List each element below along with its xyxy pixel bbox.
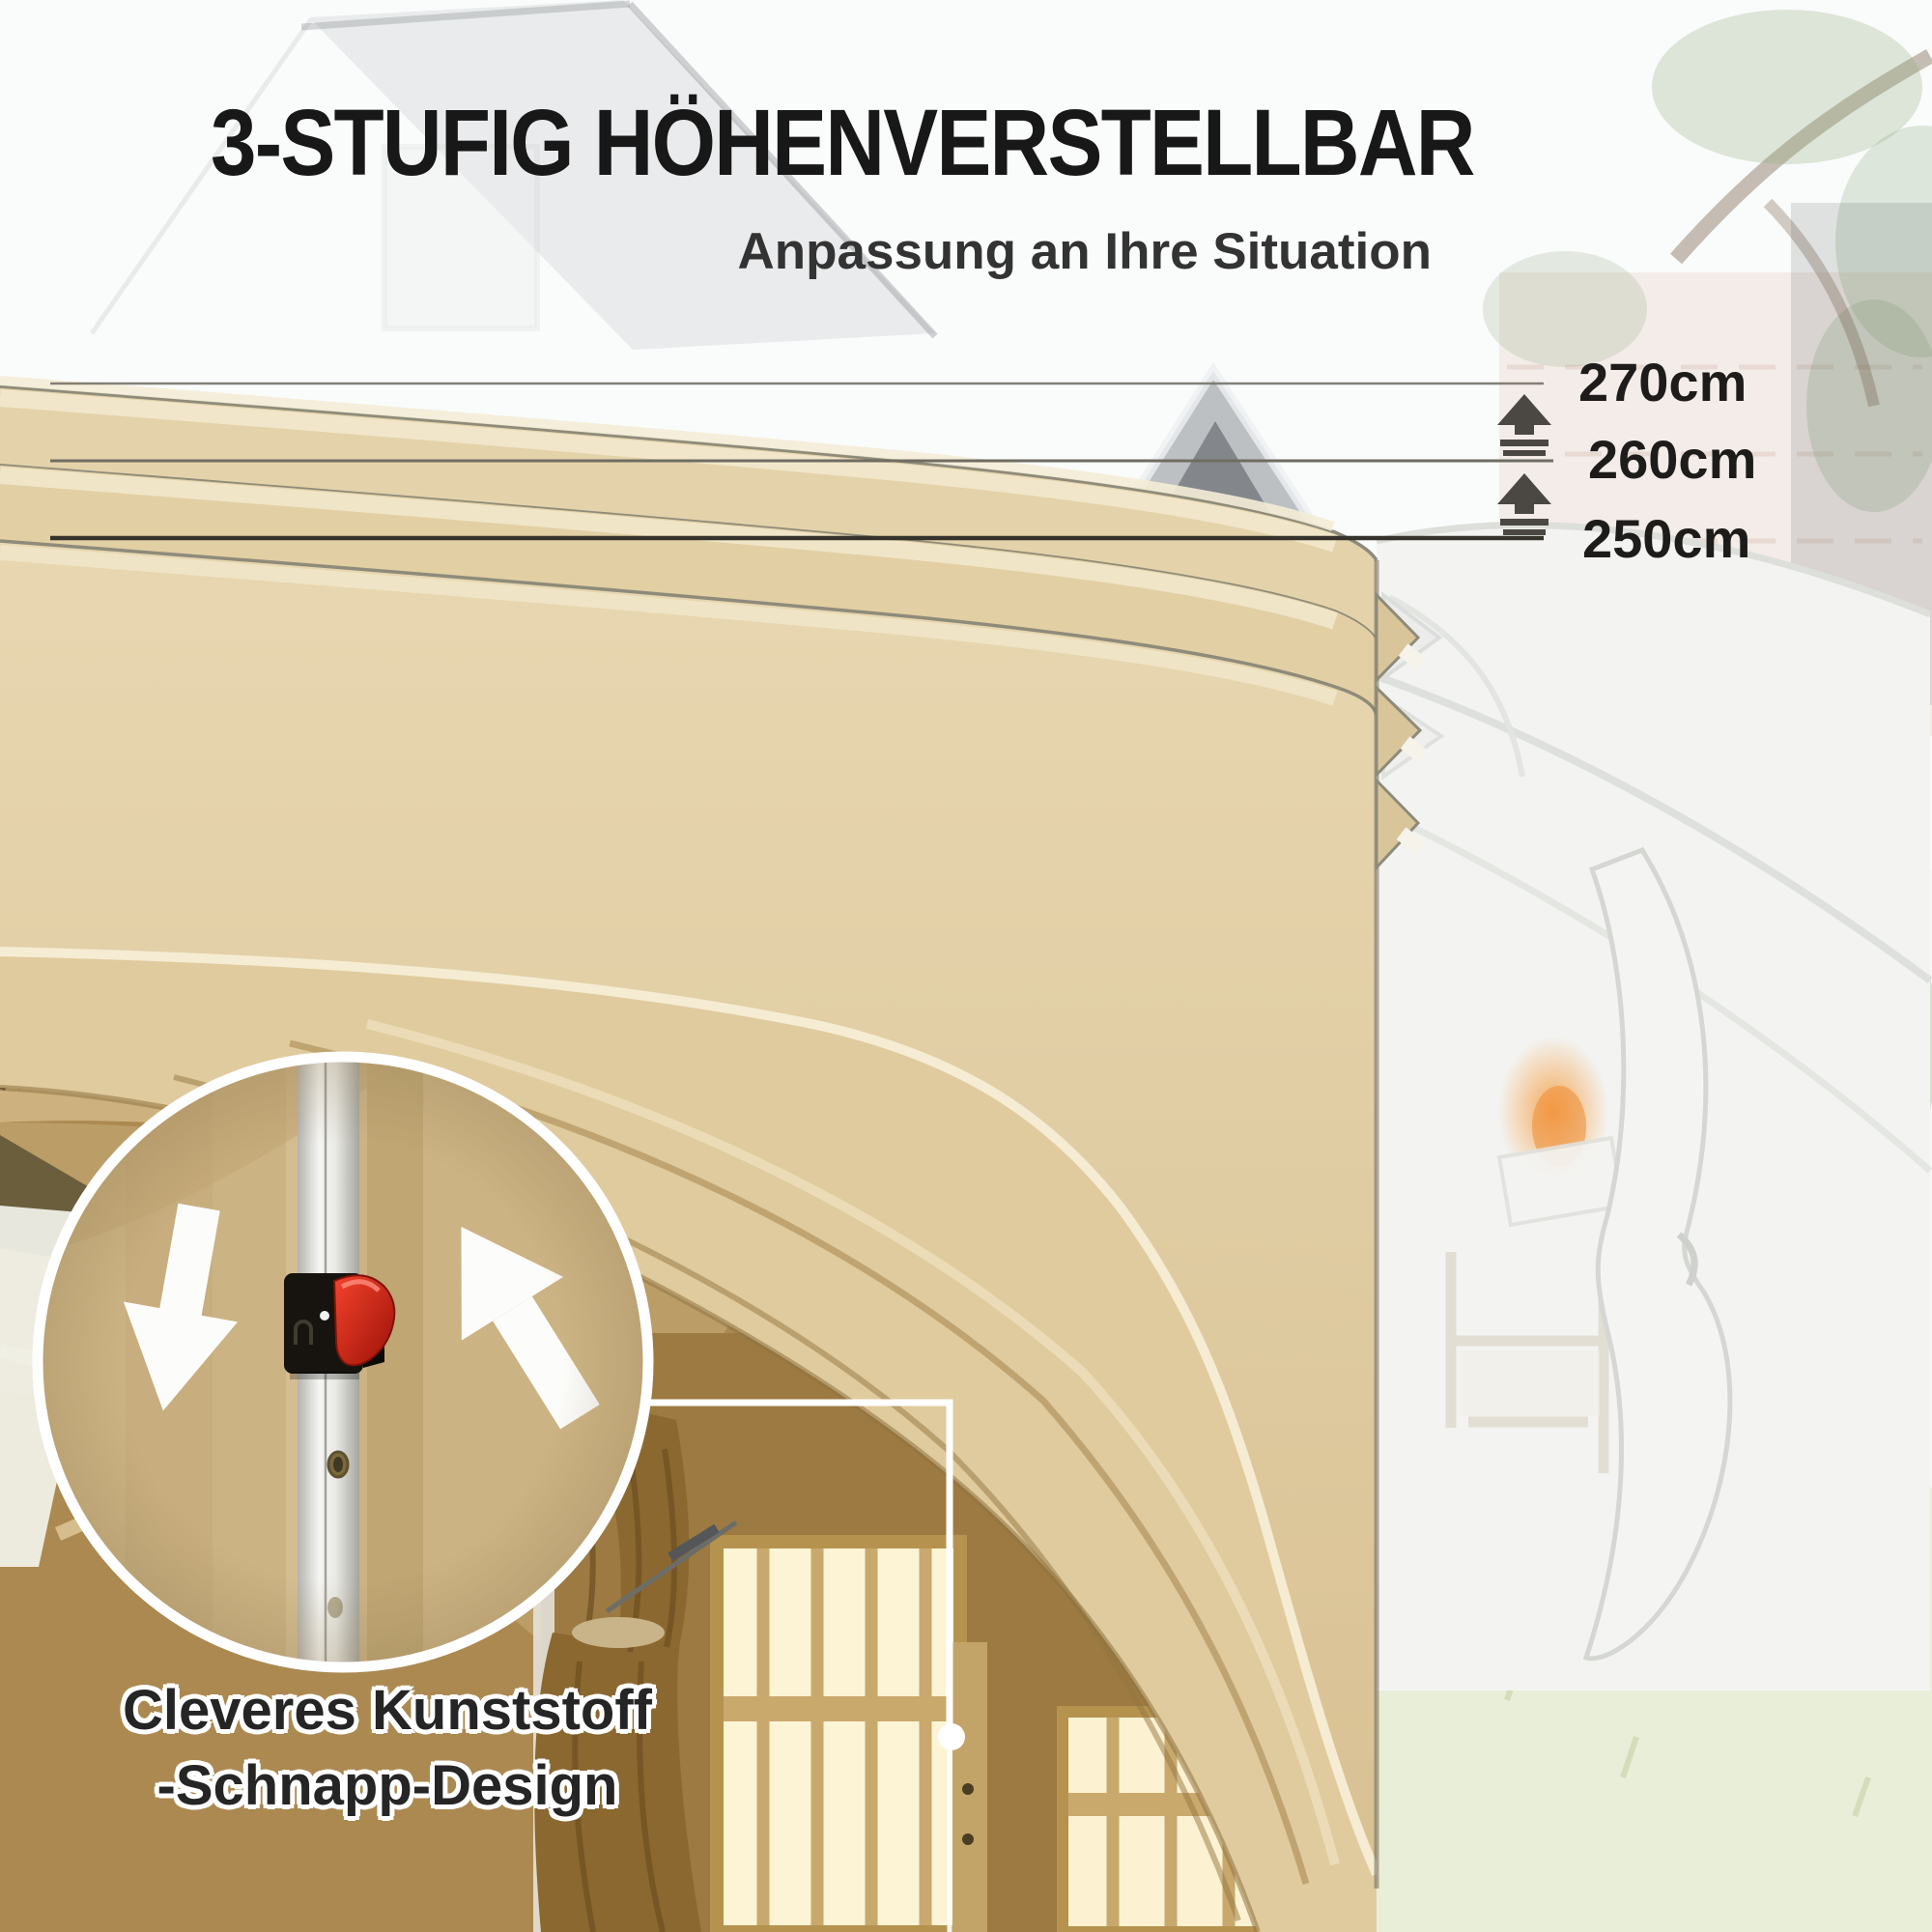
page-subtitle: Anpassung an Ihre Situation [0, 222, 1432, 281]
height-label-260: 260cm [1588, 428, 1756, 491]
scene-artwork [0, 0, 1932, 1932]
caption-line-2: -Schnapp-Design [157, 1754, 618, 1817]
ghost-tent [1377, 526, 1930, 1690]
height-label-250: 250cm [1582, 507, 1750, 570]
caption-line-1: Cleveres Kunststoff [123, 1679, 652, 1742]
height-label-270: 270cm [1578, 351, 1747, 413]
callout-dot [938, 1723, 965, 1750]
snap-design-caption: Cleveres Kunststoff -Schnapp-Design [83, 1673, 692, 1825]
product-infographic: 3-STUFIG HÖHENVERSTELLBAR Anpassung an I… [0, 0, 1932, 1932]
snap-detail-inset [34, 1051, 654, 1675]
page-title: 3-STUFIG HÖHENVERSTELLBAR [211, 89, 1474, 197]
